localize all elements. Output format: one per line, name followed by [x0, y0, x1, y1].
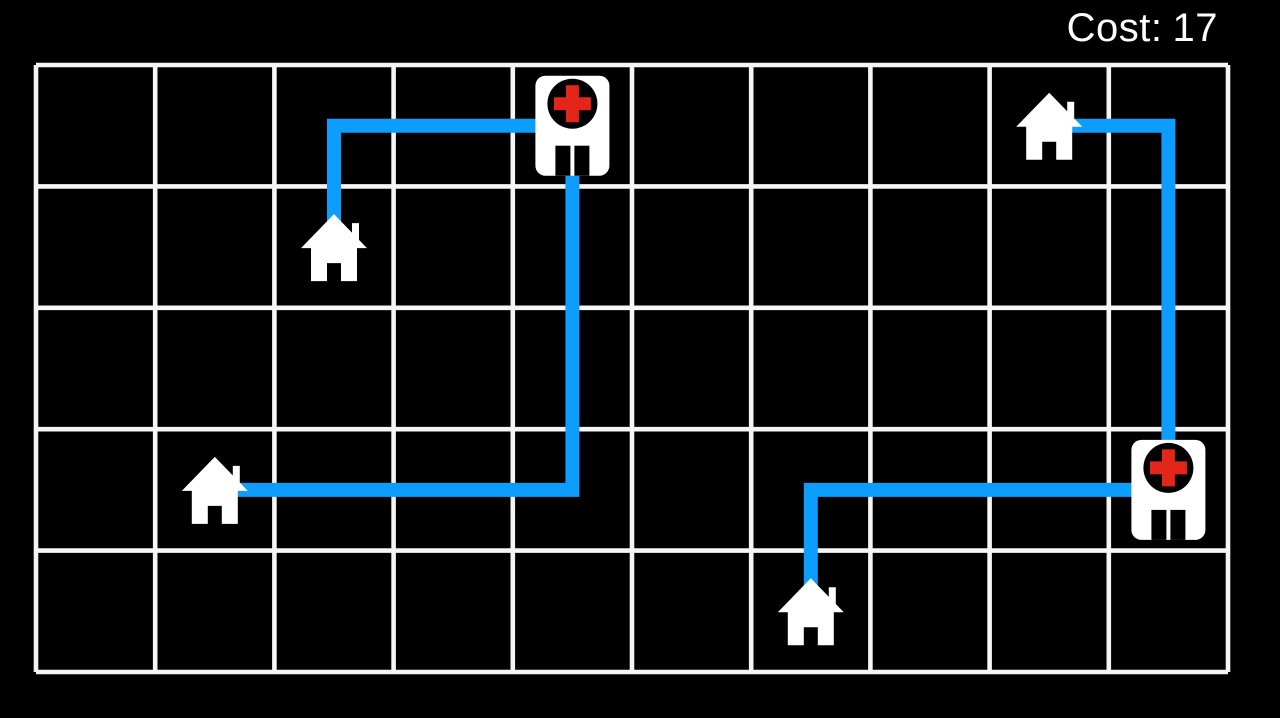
cost-value: 17	[1173, 6, 1219, 50]
route-paths	[215, 126, 1169, 612]
house-icon[interactable]	[301, 214, 367, 281]
house-icon[interactable]	[182, 457, 248, 524]
cost-display: Cost:17	[1067, 6, 1218, 51]
hospital-icon[interactable]	[1131, 440, 1205, 540]
hospital-icon[interactable]	[535, 76, 609, 176]
game-stage: Cost:17	[0, 0, 1280, 718]
house-icon[interactable]	[1016, 93, 1082, 160]
house-icon[interactable]	[778, 578, 844, 645]
cost-label: Cost:	[1067, 6, 1163, 50]
grid-lines	[36, 65, 1228, 672]
puzzle-board[interactable]	[0, 0, 1280, 718]
